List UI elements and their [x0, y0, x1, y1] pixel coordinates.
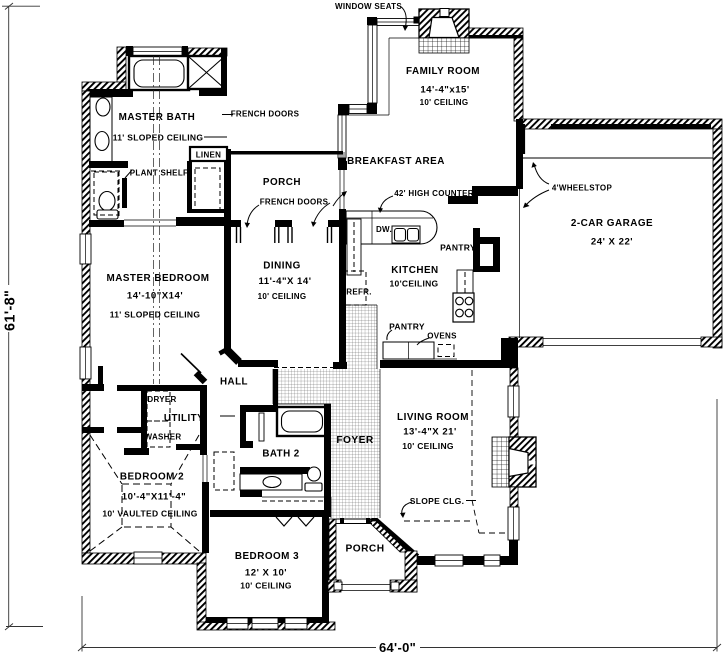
- svg-text:10'-4"X11'-4": 10'-4"X11'-4": [122, 492, 186, 503]
- svg-text:MASTER BEDROOM: MASTER BEDROOM: [106, 273, 209, 284]
- svg-text:64'-0": 64'-0": [379, 640, 416, 654]
- svg-text:61'-8": 61'-8": [3, 290, 19, 331]
- svg-text:11' SLOPED CEILING: 11' SLOPED CEILING: [113, 133, 204, 143]
- svg-text:UTILITY: UTILITY: [164, 413, 204, 424]
- svg-text:MASTER BATH: MASTER BATH: [119, 112, 196, 123]
- svg-text:PORCH: PORCH: [263, 177, 301, 188]
- svg-text:12' X 10': 12' X 10': [245, 568, 287, 579]
- svg-text:10'CEILING: 10'CEILING: [390, 279, 439, 289]
- svg-text:PANTRY: PANTRY: [389, 322, 425, 332]
- svg-text:SLOPE CLG.: SLOPE CLG.: [410, 496, 464, 506]
- svg-text:BATH 2: BATH 2: [262, 449, 299, 460]
- svg-text:BREAKFAST AREA: BREAKFAST AREA: [347, 156, 445, 167]
- svg-text:13'-4"X 21': 13'-4"X 21': [403, 427, 457, 438]
- svg-text:BEDROOM 3: BEDROOM 3: [235, 551, 299, 562]
- svg-text:14'-10"X14': 14'-10"X14': [127, 291, 183, 302]
- svg-text:10' CEILING: 10' CEILING: [420, 98, 469, 107]
- svg-text:11' SLOPED CEILING: 11' SLOPED CEILING: [110, 310, 201, 320]
- svg-text:DRYER: DRYER: [147, 395, 176, 404]
- svg-text:FRENCH DOORS: FRENCH DOORS: [260, 198, 329, 207]
- svg-text:BEDROOM 2: BEDROOM 2: [120, 472, 184, 483]
- svg-text:10' CEILING: 10' CEILING: [240, 581, 292, 591]
- svg-text:FOYER: FOYER: [336, 435, 374, 446]
- svg-text:DW.: DW.: [376, 225, 392, 234]
- svg-text:PORCH: PORCH: [345, 544, 384, 555]
- svg-text:4'WHEELSTOP: 4'WHEELSTOP: [552, 184, 613, 193]
- svg-text:HALL: HALL: [220, 377, 248, 388]
- svg-text:REFR.: REFR.: [346, 288, 372, 297]
- svg-text:11'-4"X 14': 11'-4"X 14': [258, 276, 311, 287]
- svg-text:10' VAULTED CEILING: 10' VAULTED CEILING: [102, 509, 197, 519]
- svg-text:10' CEILING: 10' CEILING: [258, 292, 307, 301]
- svg-text:FAMILY ROOM: FAMILY ROOM: [406, 66, 480, 77]
- svg-text:KITCHEN: KITCHEN: [391, 265, 438, 276]
- svg-text:LIVING ROOM: LIVING ROOM: [397, 412, 469, 423]
- svg-text:OVENS: OVENS: [427, 332, 457, 341]
- svg-text:PANTRY: PANTRY: [440, 243, 476, 253]
- svg-text:FRENCH DOORS: FRENCH DOORS: [231, 110, 300, 119]
- svg-text:LINEN: LINEN: [196, 151, 222, 160]
- svg-text:2-CAR GARAGE: 2-CAR GARAGE: [571, 218, 653, 229]
- svg-text:DINING: DINING: [263, 261, 301, 272]
- svg-text:WASHER: WASHER: [145, 433, 182, 442]
- svg-text:42' HIGH COUNTER: 42' HIGH COUNTER: [394, 189, 474, 198]
- svg-text:10' CEILING: 10' CEILING: [402, 441, 454, 451]
- svg-text:WINDOW SEATS: WINDOW SEATS: [335, 2, 402, 11]
- svg-text:14'-4"x15': 14'-4"x15': [420, 85, 469, 96]
- svg-text:24' X 22': 24' X 22': [591, 237, 633, 248]
- svg-text:PLANT SHELF: PLANT SHELF: [130, 169, 188, 178]
